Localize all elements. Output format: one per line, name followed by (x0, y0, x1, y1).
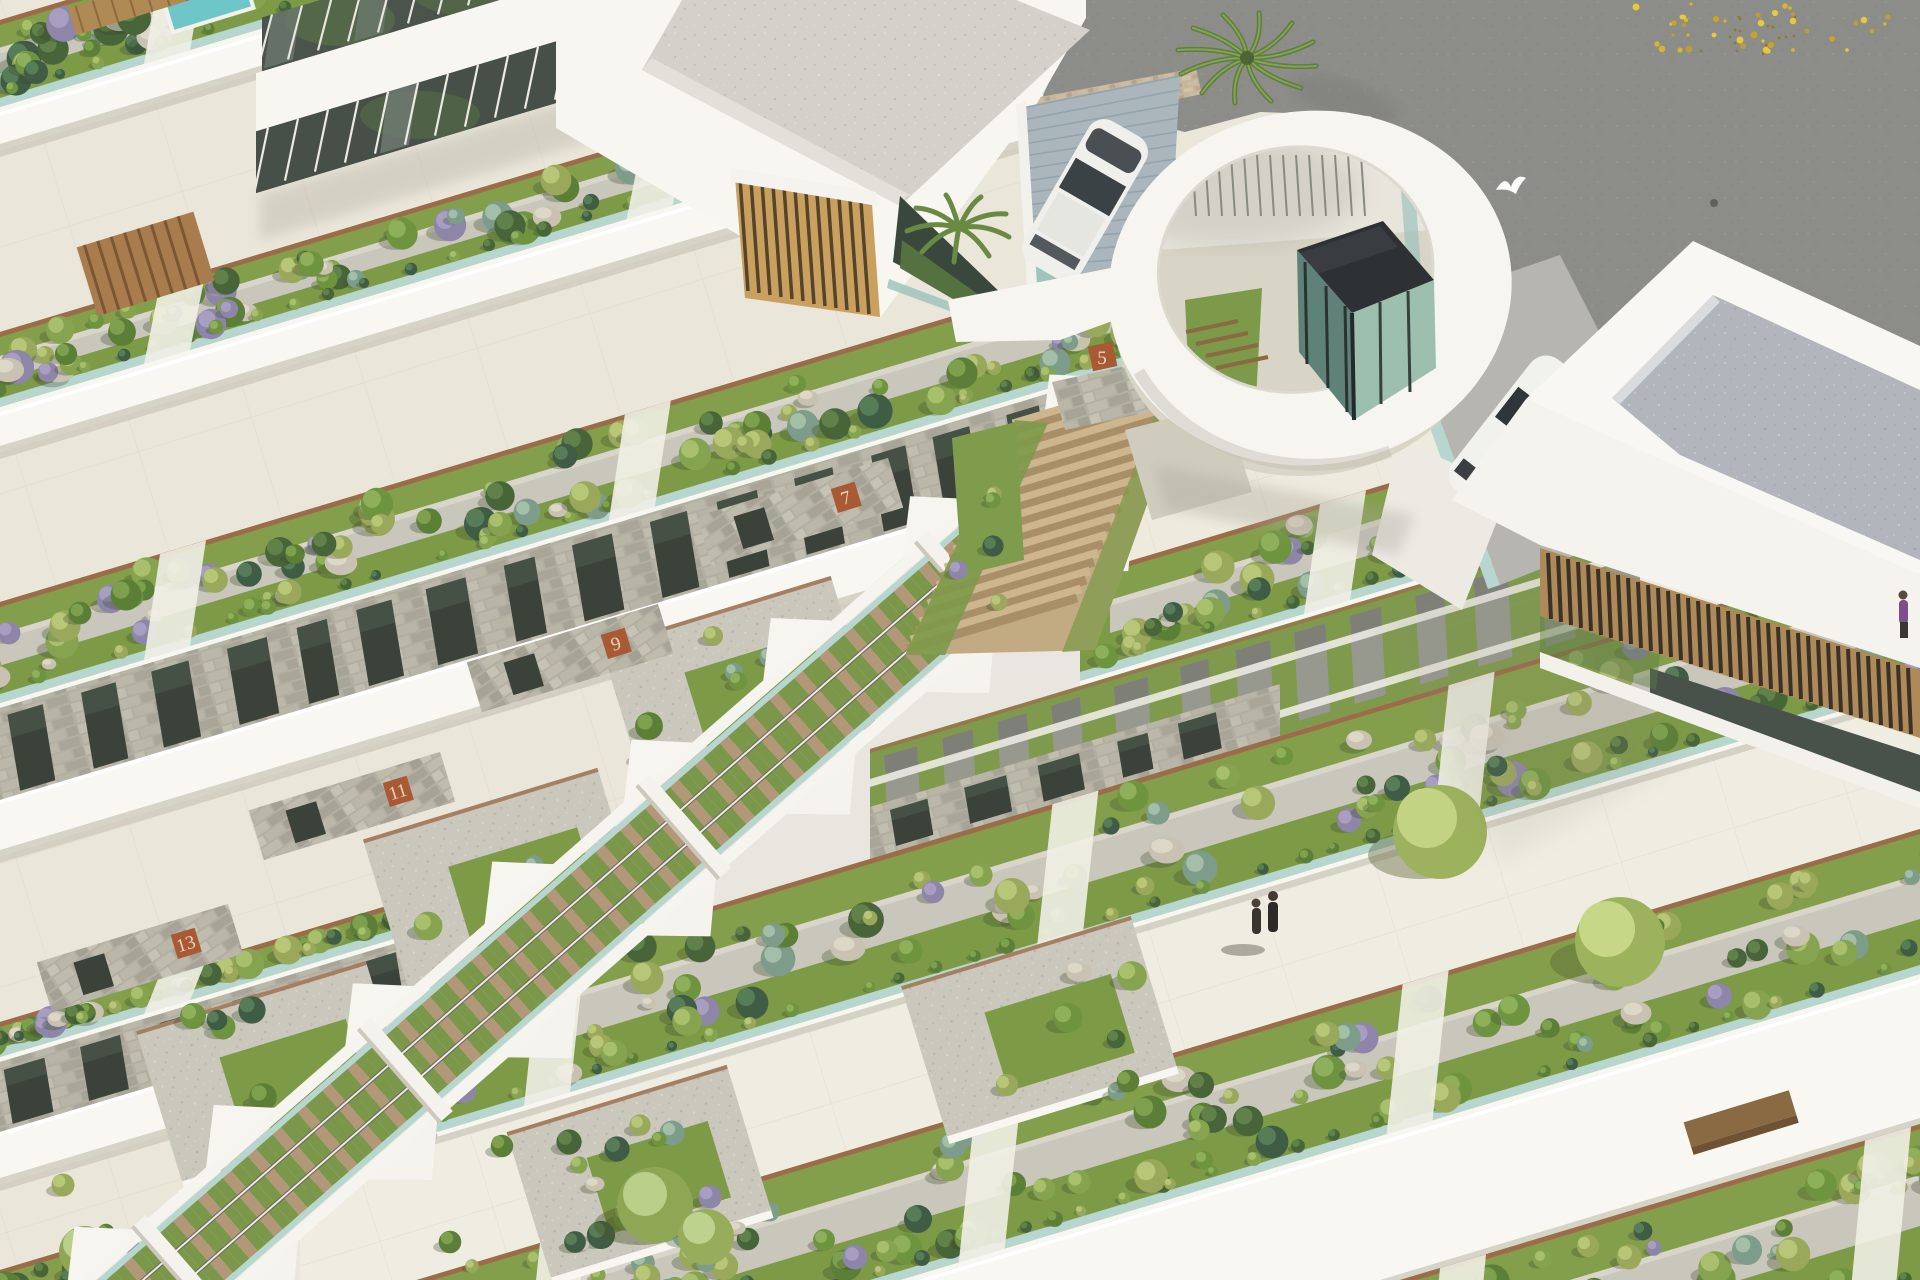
svg-text:5: 5 (1097, 348, 1107, 369)
